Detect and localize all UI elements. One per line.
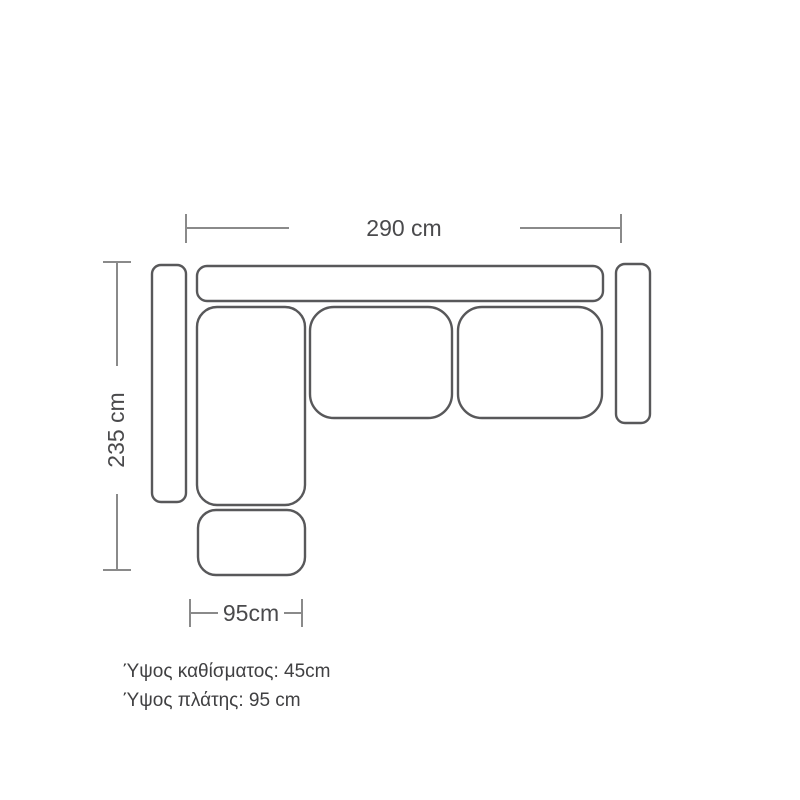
chaise-dimension-label: 95cm bbox=[190, 599, 312, 627]
seat-cushion-right bbox=[458, 307, 602, 418]
ottoman bbox=[198, 510, 305, 575]
sofa-dimension-diagram: 290 cm 235 cm 95cm Ύψος καθίσματος: 45cm… bbox=[0, 0, 800, 800]
backrest bbox=[197, 266, 603, 301]
depth-dimension-label: 235 cm bbox=[101, 350, 131, 510]
sofa-outline bbox=[152, 264, 650, 575]
seat-cushion-middle bbox=[310, 307, 452, 418]
left-armrest bbox=[152, 265, 186, 502]
chaise-seat bbox=[197, 307, 305, 505]
seat-height-note: Ύψος καθίσματος: 45cm bbox=[123, 661, 330, 683]
right-armrest bbox=[616, 264, 650, 423]
back-height-note: Ύψος πλάτης: 95 cm bbox=[123, 690, 301, 712]
width-dimension-label: 290 cm bbox=[324, 213, 484, 243]
